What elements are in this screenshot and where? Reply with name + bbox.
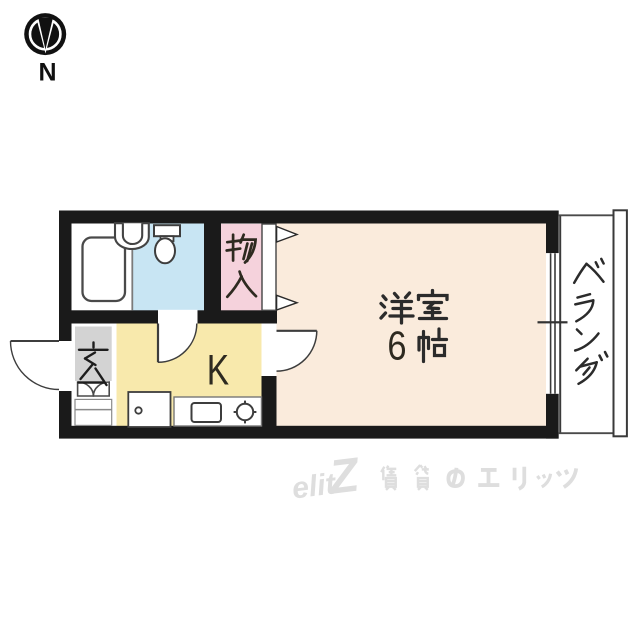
svg-text:6: 6	[387, 324, 406, 369]
svg-text:K: K	[207, 347, 230, 395]
svg-text:N: N	[38, 59, 56, 87]
